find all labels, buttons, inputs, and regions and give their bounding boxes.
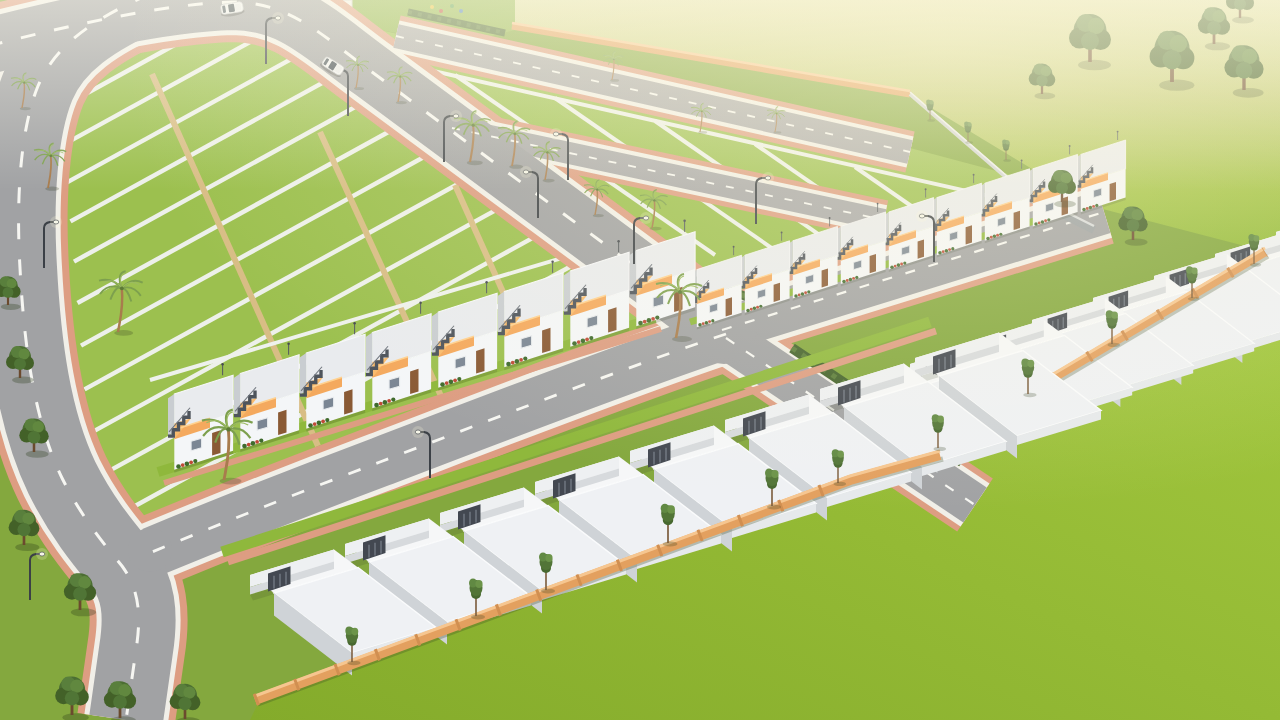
aerial-site-render [0,0,1280,720]
render-stage [0,0,1280,720]
sun-glow [0,0,1280,720]
